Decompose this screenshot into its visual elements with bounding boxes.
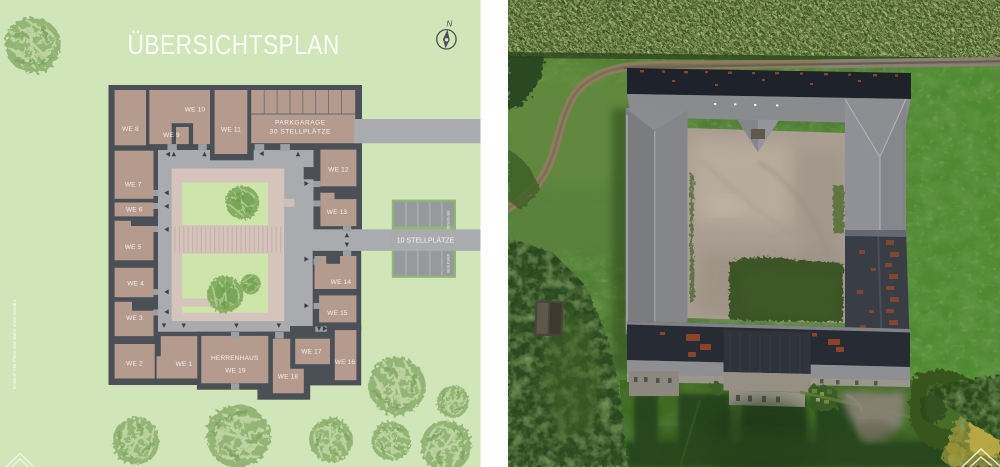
svg-text:ÜBERSICHTSPLAN: ÜBERSICHTSPLAN [128,30,340,61]
svg-text:WE 14: WE 14 [331,279,352,286]
svg-text:WE 19: WE 19 [225,368,246,375]
svg-text:WE 3: WE 3 [126,315,143,322]
svg-text:30 STELLPLÄTZE: 30 STELLPLÄTZE [270,128,331,136]
svg-text:BESUCHER: BESUCHER [447,210,451,229]
svg-text:WE 10: WE 10 [185,107,206,114]
svg-text:WE 6: WE 6 [126,207,143,214]
svg-text:PARKGARAGE: PARKGARAGE [275,120,326,127]
svg-text:WE 5: WE 5 [125,244,142,251]
svg-text:WE 4: WE 4 [127,281,144,288]
svg-text:WE 1: WE 1 [176,361,193,368]
svg-text:WE 11: WE 11 [221,127,241,134]
svg-text:WE 16: WE 16 [335,359,356,366]
svg-text:10 STELLPLÄTZE: 10 STELLPLÄTZE [397,236,455,244]
svg-text:WE 18: WE 18 [278,374,299,381]
svg-text:BESUCHER: BESUCHER [447,253,451,272]
svg-text:WE 13: WE 13 [327,209,348,216]
svg-text:WE 17: WE 17 [301,349,322,356]
svg-text:WE 12: WE 12 [328,167,349,174]
svg-text:WE 9: WE 9 [163,132,180,139]
svg-text:Entwurf. Alle Pläne und Maße o: Entwurf. Alle Pläne und Maße ohne Gewähr… [12,299,17,389]
svg-text:WE 7: WE 7 [125,182,142,189]
svg-text:N: N [446,20,452,29]
svg-text:WE 15: WE 15 [327,310,348,317]
svg-text:HERRENHAUS: HERRENHAUS [211,355,259,362]
svg-text:WE 8: WE 8 [122,126,139,133]
svg-text:WE 2: WE 2 [126,361,143,368]
